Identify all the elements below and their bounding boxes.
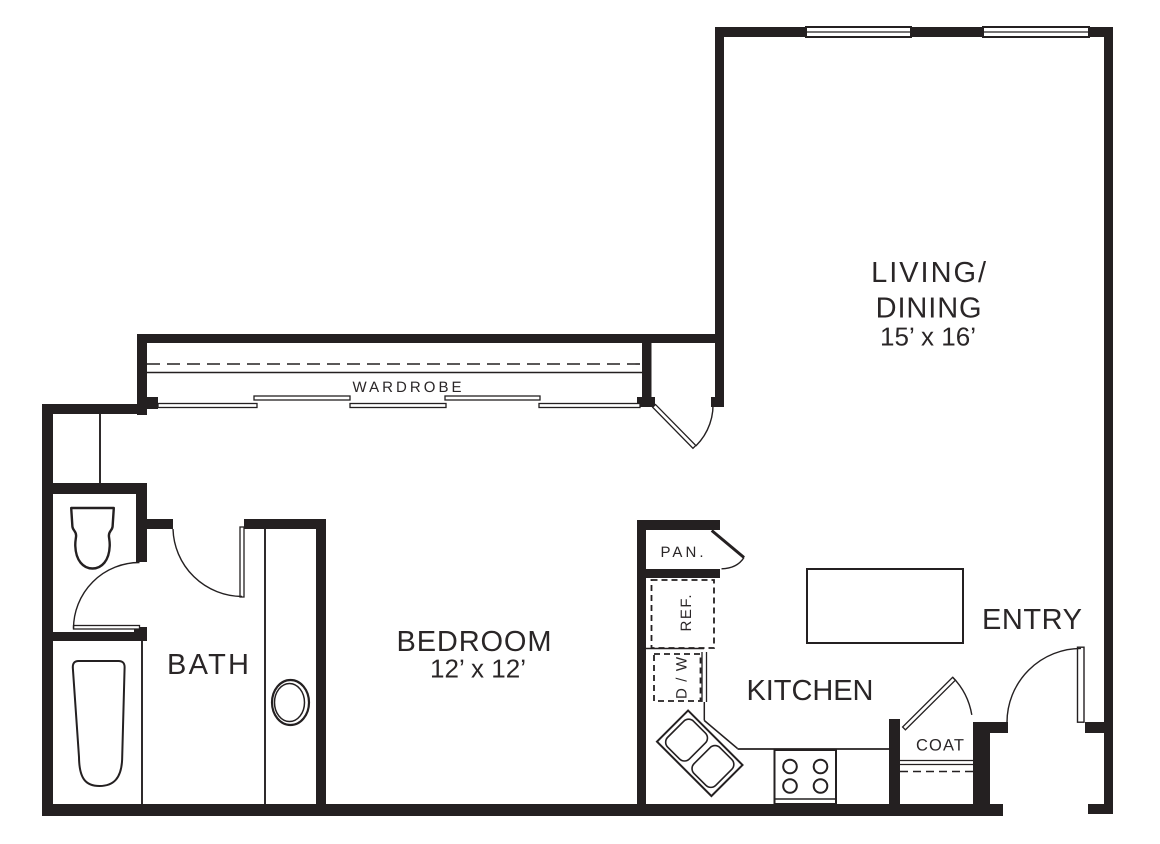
svg-text:12’ x 12’: 12’ x 12’ [430,654,526,684]
svg-text:D/W: D/W [674,656,691,699]
svg-text:15’ x 16’: 15’ x 16’ [880,322,976,352]
svg-text:DINING: DINING [876,293,982,325]
svg-text:COAT: COAT [916,737,964,755]
svg-text:BATH: BATH [167,649,249,681]
svg-text:ENTRY: ENTRY [982,604,1082,636]
svg-text:KITCHEN: KITCHEN [747,675,874,707]
